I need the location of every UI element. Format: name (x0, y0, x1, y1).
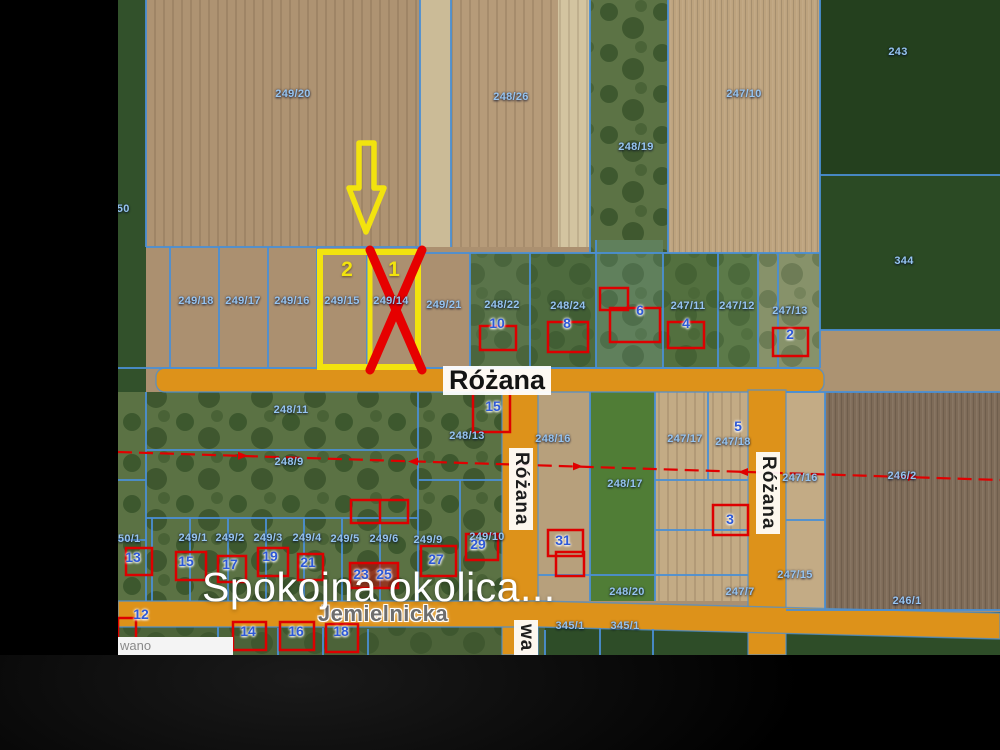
listing-marker-10: 10 (489, 315, 505, 331)
listing-marker-5: 5 (734, 418, 742, 434)
listing-marker-29: 29 (470, 536, 486, 552)
listing-slide: 250249/20248/26248/19247/10243344249/182… (0, 0, 1000, 750)
listing-marker-15: 15 (178, 553, 194, 569)
street-label-rozana-vertical-2: Różana (756, 452, 780, 534)
listing-marker-8: 8 (563, 315, 571, 331)
listing-markers-layer: 10864215531315171921232527293112141618 (118, 0, 1000, 655)
listing-marker-4: 4 (682, 315, 690, 331)
listing-marker-12: 12 (133, 606, 149, 622)
listing-marker-13: 13 (125, 549, 141, 565)
street-label-partial-wa: wa (514, 620, 538, 655)
listing-marker-31: 31 (555, 532, 571, 548)
listing-marker-3: 3 (726, 511, 734, 527)
listing-marker-15: 15 (485, 398, 501, 414)
listing-marker-2: 2 (786, 326, 794, 342)
listing-marker-6: 6 (636, 302, 644, 318)
highlight-cell-2-label: 2 (341, 258, 353, 282)
listing-marker-19: 19 (262, 548, 278, 564)
listing-marker-14: 14 (240, 623, 256, 639)
footer-bar: manager nieruchomości 1988 (0, 655, 1000, 750)
street-label-rozana: Różana (443, 366, 551, 395)
street-label-rozana-vertical-1: Różana (509, 448, 533, 530)
listing-marker-16: 16 (288, 623, 304, 639)
map-info-box: wano (118, 637, 233, 655)
highlight-cell-1-label: 1 (388, 258, 400, 282)
satellite-cadastral-map: 250249/20248/26248/19247/10243344249/182… (118, 0, 1000, 655)
headline-text: Spokojna okolica... (202, 564, 556, 611)
